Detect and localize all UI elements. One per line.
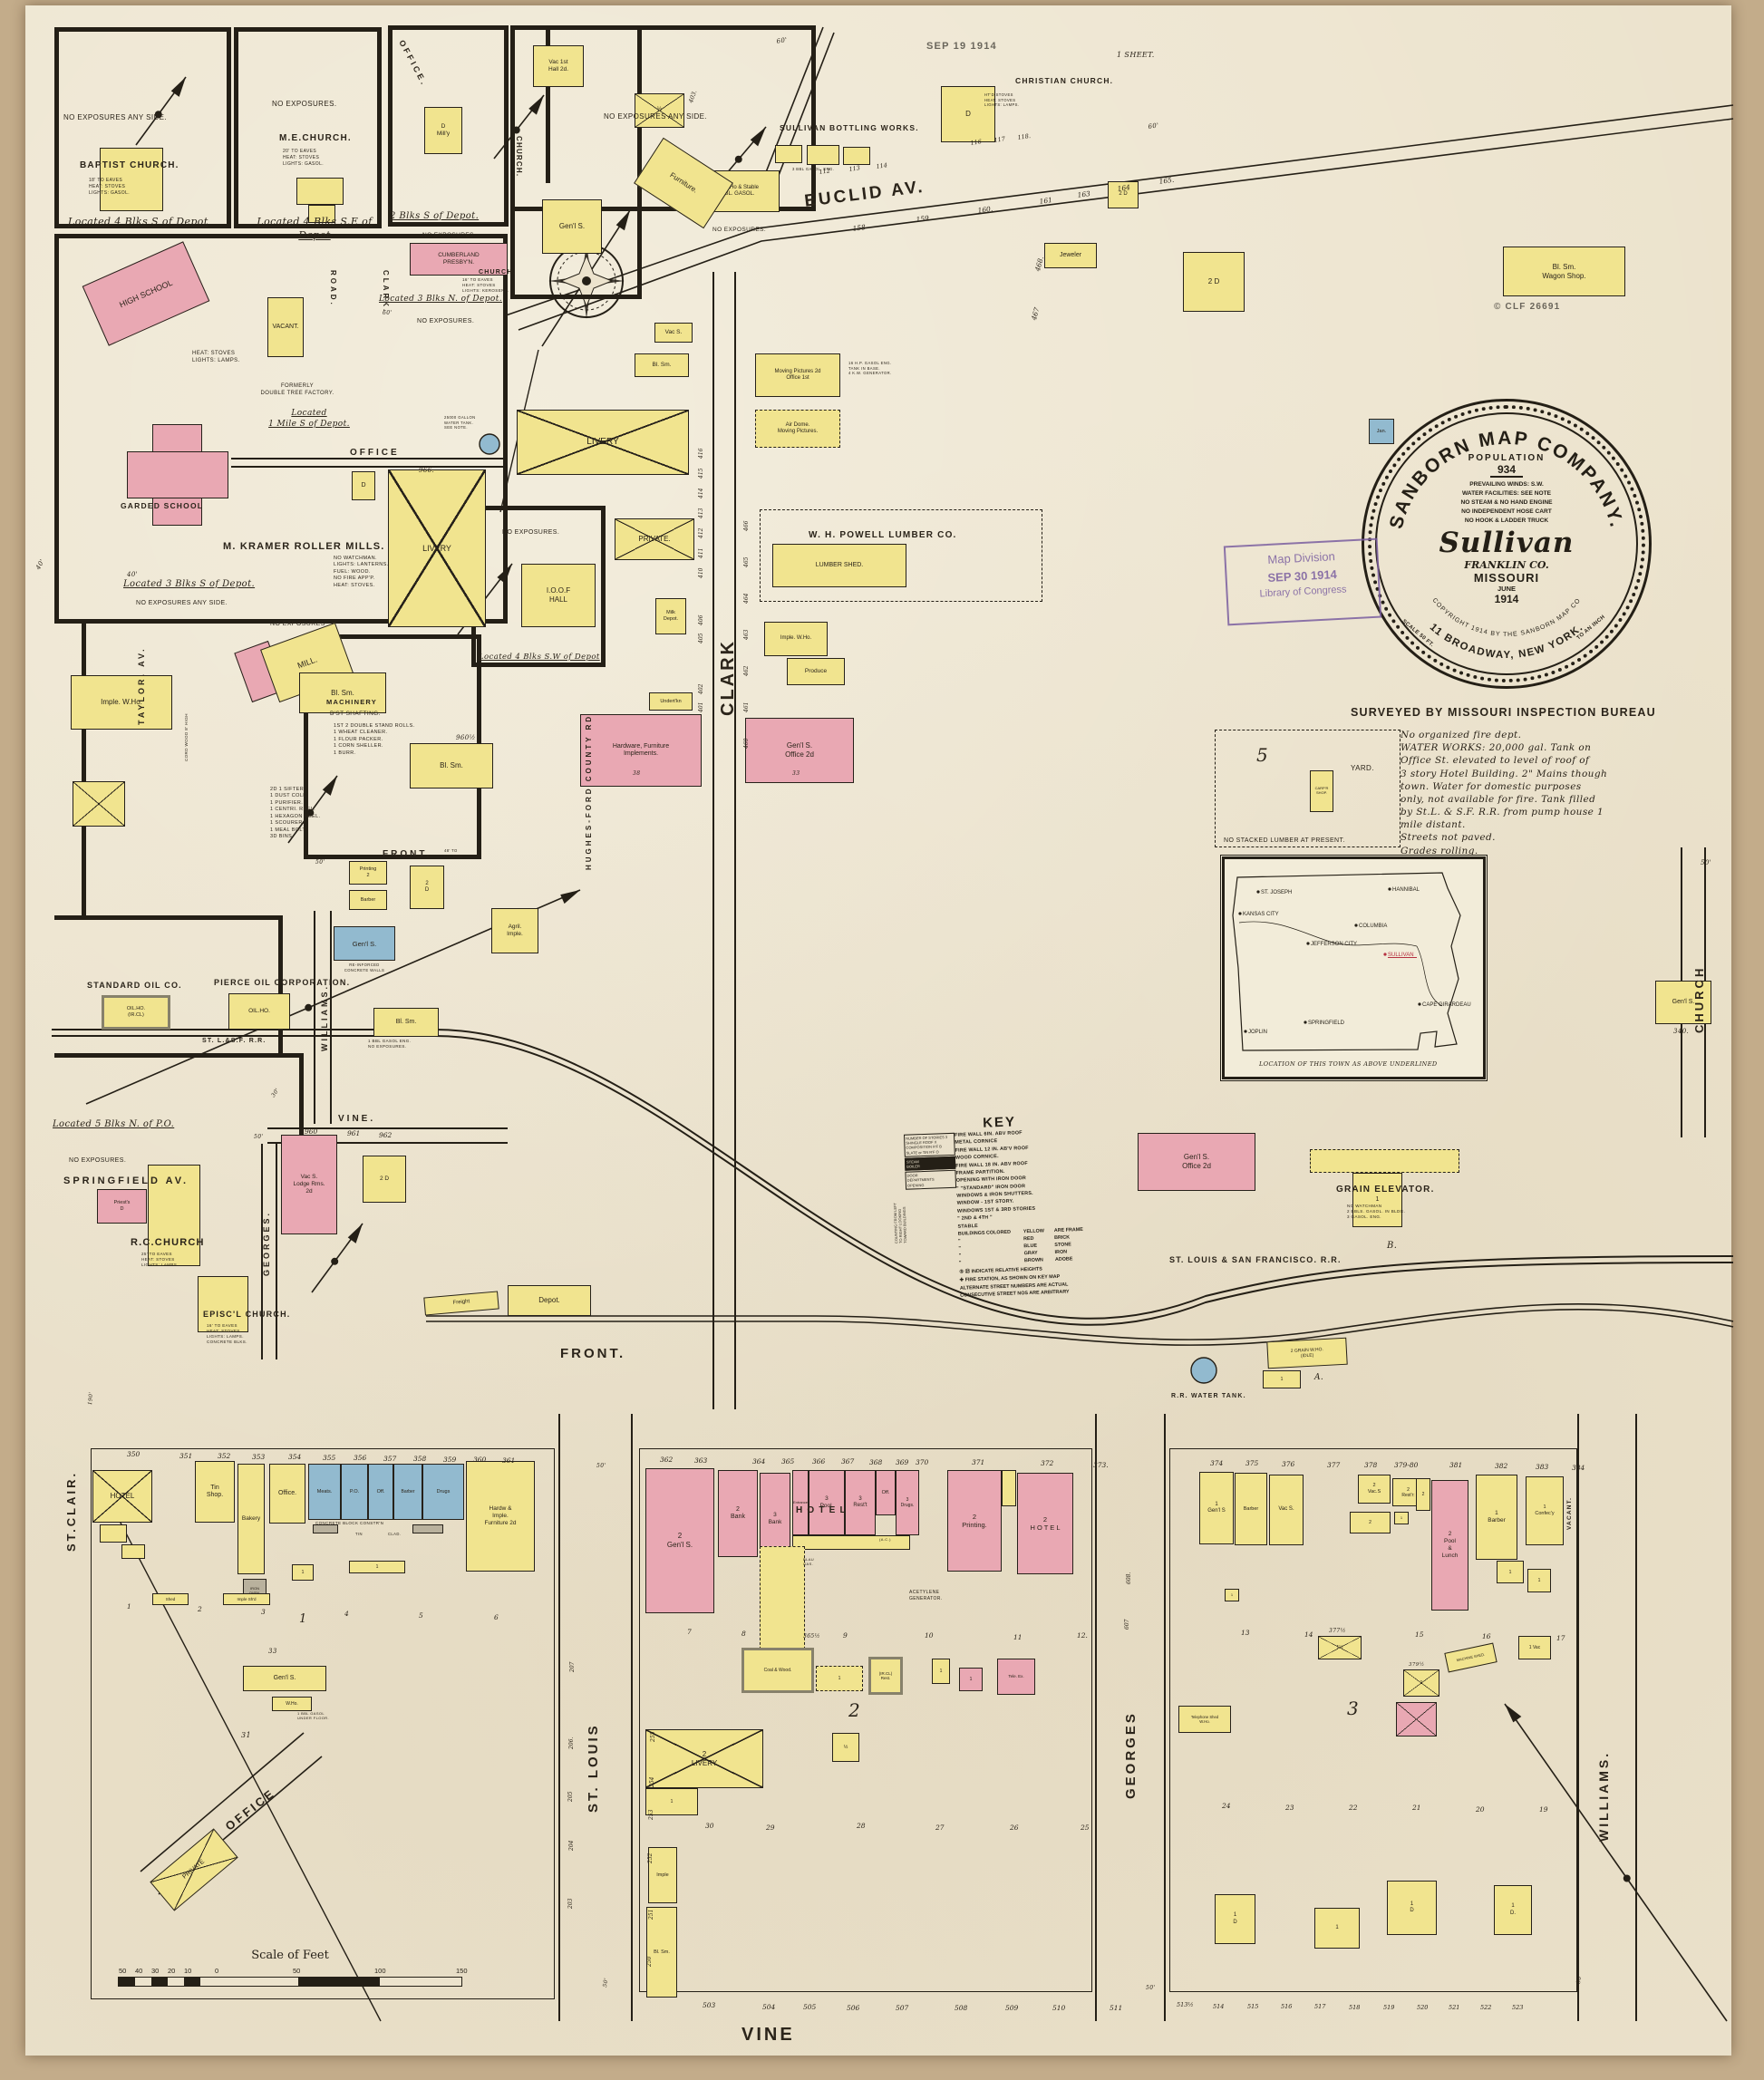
building-label: Printing 2 (360, 866, 377, 878)
lot-number: 373. (1093, 1461, 1109, 1469)
seal-year: 1914 (1495, 593, 1519, 605)
map-note: M. KRAMER ROLLER MILLS. (223, 540, 385, 554)
building: 2 Gen'l S. (645, 1468, 714, 1613)
lot-number: 384 (1572, 1464, 1585, 1472)
building-label: 1½ (1337, 1645, 1343, 1650)
lot-number: 379-80 (1394, 1461, 1418, 1469)
map-note: 2D 1 SIFTER. 1 DUST COLL. 1 PURIFIER. 1 … (270, 787, 321, 840)
building-label: Vac S. Lodge Rms. 2d (293, 1174, 325, 1195)
building: 3 Pool. (809, 1470, 845, 1535)
lot-number: 15 (1415, 1630, 1424, 1639)
lot-number: 28 (857, 1822, 866, 1830)
building: 2 D (410, 866, 444, 909)
map-note: 38 (633, 770, 640, 778)
building: Coal & Wood. (741, 1648, 814, 1693)
map-note: SULLIVAN BOTTLING WORKS. (780, 123, 919, 133)
key-boiler-box: STEAM BOILER (905, 1156, 955, 1171)
street-name: ROAD. (327, 270, 337, 307)
map-note: 340. (1673, 1028, 1689, 1036)
map-note: MACHINERY (326, 698, 377, 707)
map-note: NO EXPOSURES. (417, 317, 474, 325)
map-note: FORMERLY DOUBLE TREE FACTORY. (243, 382, 352, 397)
building-label: CUMBERLAND PRESBY'N. (438, 252, 480, 266)
lot-number: 371 (972, 1458, 984, 1466)
building: I.O.O.F HALL (521, 564, 596, 627)
street-name: CLARK (716, 639, 741, 716)
building: 1 (1314, 1908, 1360, 1949)
map-note: CONCRETE BLOCK CONSTR'N (315, 1521, 383, 1526)
street-name: VINE (741, 2023, 795, 2047)
building (1310, 1149, 1459, 1173)
building-label: MACHINE SHED. (1456, 1652, 1485, 1662)
map-note: R.R. WATER TANK. (1171, 1392, 1246, 1400)
building: Printing 2 (349, 861, 387, 885)
building-label: Gen'l S. (559, 222, 585, 231)
lot-number: 366 (812, 1457, 825, 1466)
building: Bl. Sm. (635, 353, 689, 377)
building: Barber (393, 1464, 422, 1520)
building-label: Freight (452, 1300, 470, 1308)
building: OIL.HO. (228, 993, 290, 1030)
map-note: NO EXPOSURES. (712, 227, 766, 235)
building-label: Telephone Shed W.Ho. (1191, 1715, 1218, 1724)
lot-number: 522 (1480, 2004, 1491, 2011)
building: Agril. Imple. (491, 908, 538, 953)
building: 1 (349, 1561, 405, 1573)
street-name: CHURCH (1691, 966, 1708, 1033)
building: Vac S. Lodge Rms. 2d (281, 1135, 337, 1234)
building: 2 GRAIN W.HO. (IDLE) (1266, 1338, 1347, 1369)
lot-number: 960 (305, 1127, 317, 1136)
lot-number: 406 (698, 615, 704, 625)
map-note: 1 BBL GASOL ENG. NO EXPOSURES. (368, 1039, 411, 1050)
building-label: 2 (1422, 1492, 1425, 1497)
map-note: 50' (1701, 859, 1711, 867)
map-note: 33 (792, 770, 800, 778)
street-name: WILLIAMS. (1595, 1751, 1613, 1842)
library-of-congress-stamp: Map Division SEP 30 1914 Library of Cong… (1224, 538, 1381, 626)
building-label: I.O.O.F HALL (547, 586, 570, 604)
lot-number: 411 (698, 548, 704, 558)
map-note: No organized fire dept. WATER WORKS: 20,… (1401, 729, 1607, 857)
building-label: 2 Gen'l S. (667, 1532, 693, 1549)
street-line (276, 1144, 277, 1359)
lot-number: 4 (344, 1610, 349, 1618)
building-label: Gen'l S. (353, 940, 376, 948)
building-label: CARP'R SHOP. (1315, 787, 1329, 796)
building-label: Barber (1244, 1506, 1259, 1513)
building-label: Tin Shop. (207, 1485, 223, 1500)
lot-number: 368 (869, 1458, 882, 1466)
building: Barber (349, 890, 387, 910)
street-name: ST. LOUIS (585, 1723, 603, 1813)
building-label: Vac 1st Hall 2d. (548, 59, 568, 73)
lot-number: 350 (127, 1450, 140, 1458)
building-label: 3 Bank (769, 1512, 782, 1526)
map-note: 365½ (803, 1633, 820, 1640)
lot-number: 961 (347, 1129, 360, 1137)
lot-number: 518 (1349, 2004, 1360, 2011)
map-note: BAPTIST CHURCH. (80, 160, 179, 172)
lot-number: 353 (252, 1453, 265, 1461)
map-note: 379½ (1409, 1662, 1424, 1669)
key-color-rows: BUILDINGS COLOREDYELLOWARE FRAME"REDBRIC… (958, 1225, 1100, 1267)
building: ½ (635, 93, 684, 128)
inset-city-label: HANNIBAL (1392, 887, 1420, 893)
building-label: Barber (361, 897, 376, 904)
building-label: 1 D (1233, 1912, 1236, 1925)
map-note: Located 4 Blks S of Depot (68, 216, 208, 229)
lot-number: 3 (261, 1608, 266, 1616)
key-footnotes: ⑤ ㉗ INDICATE RELATIVE HEIGHTS✚ FIRE STAT… (959, 1264, 1101, 1301)
building: Off. (876, 1470, 896, 1515)
building-label: 2 Rest'r: (1401, 1487, 1414, 1498)
lot-number: 254 (649, 1777, 655, 1787)
lot-number: 29 (766, 1824, 775, 1832)
lot-number: 203 (567, 1899, 574, 1909)
building (1396, 1702, 1437, 1737)
map-note: ACETYLENE GENERATOR. (909, 1590, 943, 1602)
lot-number: 25 (1081, 1824, 1090, 1832)
map-note: 960½ (456, 734, 476, 742)
street-line (558, 1414, 560, 2021)
map-note: B. (1387, 1240, 1397, 1253)
building-label: 1 Barber (1488, 1510, 1506, 1524)
building: Bl. Sm. (299, 672, 386, 713)
street-line (712, 272, 714, 1409)
seal-month: JUNE (1497, 585, 1516, 593)
map-note: 2 (848, 1698, 860, 1723)
lot-number: 355 (323, 1454, 335, 1462)
building: 1 (292, 1564, 314, 1581)
street-name: SPRINGFIELD AV. (63, 1175, 189, 1188)
seal-population-value: 934 (1490, 463, 1523, 478)
building-label: 1 Confec'y (1535, 1504, 1554, 1516)
building-label: Coal & Wood. (764, 1668, 792, 1673)
lot-number: 250 (646, 1957, 653, 1967)
building-label: Depot. (538, 1296, 560, 1305)
lot-number: 464 (743, 594, 750, 604)
lot-number: 413 (698, 508, 704, 518)
map-note: NO EXPOSURES (270, 620, 325, 628)
lot-number: 363 (694, 1456, 707, 1465)
lot-number: 11 (1013, 1633, 1023, 1641)
map-note: 50' (1146, 1985, 1155, 1992)
building (121, 1544, 145, 1559)
building: 1 (1394, 1512, 1409, 1524)
building-label: Tele. Ex. (1008, 1674, 1023, 1679)
lot-number: 520 (1417, 2004, 1428, 2011)
building: Entrance (792, 1470, 809, 1535)
lot-number: 414 (698, 489, 704, 498)
map-note: 50' (315, 859, 325, 866)
map-note: 377½ (1329, 1628, 1346, 1635)
building: 2 D (1183, 252, 1245, 312)
map-note: 190' (87, 1391, 95, 1405)
street-name: ST.CLAIR. (63, 1471, 80, 1552)
inset-city-label: SPRINGFIELD (1308, 1021, 1345, 1026)
building: LIVERY (388, 469, 486, 627)
building-label: Undert'kn (660, 699, 681, 705)
street-name: HUGHES-FORD COUNTY RD (585, 714, 595, 870)
lot-number: 509 (1005, 2004, 1018, 2012)
building-label: 1 (1509, 1570, 1512, 1575)
building: D (352, 471, 375, 500)
lot-number: 516 (1281, 2003, 1292, 2010)
map-note: TIN (355, 1532, 363, 1537)
street-line (734, 272, 736, 1409)
map-note: 50' (596, 1463, 606, 1470)
lot-number: 10 (925, 1631, 934, 1640)
lot-number: 361 (502, 1456, 515, 1465)
building-label: 1 (302, 1570, 305, 1575)
building-label: Furniture. (668, 171, 699, 196)
map-note: © CLF 26691 (1494, 301, 1560, 314)
building: 3 Drugs. (896, 1470, 919, 1535)
building: 2 Vac.S (1358, 1475, 1391, 1504)
building-label: Bl. Sm. (440, 761, 463, 770)
street-line (54, 1053, 304, 1058)
building-label: Imple Sh'd (237, 1597, 256, 1601)
lot-number: 415 (698, 469, 704, 479)
lot-number: 359 (443, 1456, 456, 1464)
map-note: 25000 GALLON WATER TANK. SEE NOTE. (444, 415, 476, 431)
lot-number: 460 (743, 739, 750, 749)
map-note: NO EXPOSURES. (272, 100, 336, 110)
building-label: Gen'l S. Office 2d (1182, 1153, 1211, 1170)
building-label: Jan. (1377, 429, 1386, 435)
building-label: 2 GRAIN W.HO. (IDLE) (1291, 1347, 1324, 1359)
map-note: YARD. (1351, 764, 1374, 774)
state-locator-inset: ST. JOSEPHHANNIBALKANSAS CITYCOLUMBIAJEF… (1222, 856, 1486, 1079)
building-label: 2 Printing. (962, 1513, 987, 1529)
lot-number: 204 (568, 1841, 575, 1851)
street-line (231, 466, 508, 468)
map-note: Located 3 Blks S of Depot. (123, 578, 255, 591)
building: Vac S. (654, 323, 693, 343)
building-label: 1 (1420, 1680, 1423, 1686)
lot-number: 410 (698, 568, 704, 578)
lot-number: 372 (1041, 1459, 1053, 1467)
building: Gen'l S. (334, 926, 395, 961)
building-label: 1 (376, 1564, 379, 1570)
inset-city-label: JEFFERSON CITY (1311, 942, 1357, 947)
building-label: Hardware, Furniture Implements. (613, 743, 669, 759)
building: Vac 1st Hall 2d. (533, 45, 584, 87)
lot-number: 19 (1539, 1805, 1548, 1814)
building-label: 1 (940, 1669, 943, 1674)
building: Depot. (508, 1285, 591, 1316)
lot-number: 510 (1052, 2004, 1065, 2012)
lot-number: 521 (1449, 2004, 1459, 2011)
building: OIL.HO. (IR.CL) (102, 995, 170, 1030)
map-note: (A.C.) (879, 1537, 891, 1542)
building (792, 1535, 910, 1550)
lot-number: 463 (743, 630, 750, 640)
lot-number: 114 (876, 161, 887, 170)
building (843, 147, 870, 165)
map-note: 16 H.P. GASOL ENG. TANK IN BASE. 4 K.W. … (848, 361, 892, 376)
building-label: 2 D (1208, 277, 1219, 286)
building: 1 D (1387, 1881, 1437, 1935)
building: 2 LIVERY (645, 1729, 763, 1788)
map-note: VACANT. (1566, 1497, 1575, 1530)
map-note: 2 Blks S of Depot. (390, 210, 479, 223)
building: 1 Confec'y (1526, 1476, 1564, 1545)
building-label: Priest's D (114, 1200, 131, 1212)
building: VACANT. (267, 297, 304, 357)
map-key-legend: KEY NUMBER OF STORIES 3 SHINGLE ROOF X C… (903, 1111, 1101, 1310)
building: 1½ (1318, 1636, 1362, 1659)
building-label: 1 (1401, 1516, 1402, 1521)
building-label: Office. (278, 1490, 296, 1497)
street-line (267, 1127, 508, 1129)
map-note: 1 (299, 1611, 307, 1628)
map-note: 40' (127, 571, 138, 579)
building-label: 2 Pool & Lunch (1442, 1531, 1459, 1559)
building: Tele. Ex. (997, 1659, 1035, 1695)
lot-number: 416 (698, 449, 704, 459)
lot-number: 117 (993, 135, 1005, 144)
building: 2 Pool & Lunch (1431, 1480, 1468, 1611)
building: Gen'l S. (542, 199, 602, 254)
street-line (314, 911, 315, 1124)
map-note: W. H. POWELL LUMBER CO. (809, 529, 957, 542)
map-note: 3 (1347, 1697, 1359, 1721)
building: Air Dome. Moving Pictures. (755, 410, 840, 448)
building-label: Agril. Imple. (507, 924, 523, 938)
map-note: EPISC'L CHURCH. (203, 1309, 290, 1320)
lot-number: 382 (1495, 1462, 1507, 1470)
street-name: CLARK. (380, 270, 390, 314)
lot-number: 362 (660, 1456, 673, 1464)
building-label: OIL.HO. (248, 1008, 270, 1015)
map-note: 20' TO EAVES HEAT: STOVES LIGHTS: GASOL. (283, 149, 324, 167)
building: Jan. (1369, 419, 1394, 444)
map-note: GRAIN ELEVATOR. (1336, 1184, 1435, 1196)
building (1002, 1470, 1016, 1506)
lot-number: 517 (1314, 2003, 1325, 2010)
building: P.O. (341, 1464, 368, 1520)
lot-number: 9 (843, 1631, 848, 1640)
building: 1 (1527, 1569, 1551, 1592)
inset-city-label: JOPLIN (1248, 1030, 1267, 1035)
inset-city-label: COLUMBIA (1359, 924, 1387, 929)
map-note: NO EXPOSURES. (69, 1156, 126, 1165)
map-note: 33 (268, 1648, 277, 1656)
building-label: Bl. Sm. (653, 362, 672, 369)
building: Hardw & Imple. Furniture 2d (466, 1461, 535, 1572)
street-name: GEORGES. (261, 1211, 272, 1276)
lot-number: 511 (1110, 2004, 1122, 2012)
lot-number: 26 (1010, 1824, 1019, 1832)
building (296, 178, 344, 205)
building-label: LUMBER SHED. (816, 562, 864, 569)
building: 2 D (363, 1156, 406, 1203)
building: Imple. W.Ho. (764, 622, 828, 656)
building-label: Bakery (242, 1515, 260, 1523)
map-note: R.C.CHURCH (131, 1236, 205, 1250)
lot-number: 375 (1245, 1459, 1258, 1467)
building-label: 2 D (380, 1175, 389, 1183)
lot-number: 13 (1241, 1629, 1250, 1637)
map-note: NO WATCHMAN. LIGHTS: LANTERNS. FUEL: WOO… (334, 556, 389, 589)
building: 1 (1403, 1669, 1439, 1697)
building: Office. (269, 1464, 305, 1524)
building: Moving Pictures 2d Office 1st (755, 353, 840, 397)
building: Imple Sh'd (223, 1593, 270, 1605)
map-note: ST. L.&S.F. R.R. (202, 1037, 267, 1045)
building-label: 2 (1369, 1520, 1371, 1525)
lot-number: 21 (1412, 1804, 1421, 1812)
map-note: BLAU GAS. (803, 1557, 814, 1567)
building: Imple. W.Ho. (71, 675, 172, 730)
map-note: HEAT: STOVES LIGHTS: LAMPS. (192, 350, 240, 364)
map-note: GARDED SCHOOL (121, 501, 203, 511)
building-label: 2 H O T E L (1030, 1515, 1060, 1532)
lot-number: 251 (648, 1910, 654, 1920)
sanborn-seal: SANBORN MAP COMPANY. 11 BROADWAY, NEW YO… (1362, 399, 1652, 689)
building-label: 1 D. (1510, 1903, 1516, 1916)
lot-number: 207 (569, 1662, 576, 1672)
building-label: Meats. (317, 1489, 333, 1495)
building-label: 1 (1376, 1196, 1380, 1204)
building-label: Vac S. (1278, 1506, 1294, 1513)
lot-number: 507 (896, 2004, 908, 2012)
building (775, 145, 802, 163)
map-note: NO EXPOSURES ANY SIDE. (63, 113, 167, 123)
map-note: STANDARD OIL CO. (87, 980, 182, 991)
building-label: PRIVATE. (638, 535, 670, 544)
building-label: Milk Depot. (664, 610, 678, 622)
building: 2 H O T E L (1017, 1473, 1073, 1574)
lot-number: 505 (803, 2003, 816, 2011)
map-note: 16' TO EAVES HEAT: STOVES LIGHTS: KEROSE… (462, 277, 509, 294)
building: LUMBER SHED. (772, 544, 906, 587)
street-name: FRONT. (383, 848, 431, 861)
building (100, 1524, 127, 1543)
building: 3 Rest't (845, 1470, 876, 1535)
lot-number: 352 (218, 1452, 230, 1460)
missouri-inset-map: ST. JOSEPHHANNIBALKANSAS CITYCOLUMBIAJEF… (1225, 859, 1483, 1077)
map-note: 48' TO FR. DWG (444, 848, 463, 858)
building: Bakery (237, 1464, 265, 1574)
building-label: 3 Rest't (853, 1496, 867, 1509)
seal-state: MISSOURI (1474, 571, 1539, 585)
map-note: CHRISTIAN CHURCH. (1015, 76, 1113, 86)
building-label: Jeweler (1060, 252, 1081, 259)
map-note: NO EXPOSURES. (502, 528, 559, 537)
building: 1 (932, 1659, 950, 1684)
building-label: Bl. Sm. (331, 689, 354, 698)
lot-number: 24 (1222, 1802, 1231, 1810)
map-note: CORD WOOD 8' HIGH (184, 713, 189, 761)
lot-number: 20 (1476, 1805, 1485, 1814)
building (73, 781, 125, 827)
lot-number: 378 (1364, 1461, 1377, 1469)
lot-number: 462 (743, 666, 750, 676)
building: 1 (816, 1666, 863, 1691)
map-note: 1ST 2 DOUBLE STAND ROLLS. 1 WHEAT CLEANE… (334, 723, 415, 757)
lot-number: 206. (568, 1737, 575, 1749)
street-name: GEORGES (1122, 1711, 1140, 1799)
lot-number: 503 (703, 2001, 715, 2009)
inset-city-label: ST. JOSEPH (1261, 890, 1292, 895)
map-note: B'ST SHAFTING. (330, 711, 381, 719)
map-note: SURVEYED BY MISSOURI INSPECTION BUREAU (1351, 705, 1731, 721)
building (412, 1524, 443, 1533)
building-label: MILL. (296, 654, 319, 671)
